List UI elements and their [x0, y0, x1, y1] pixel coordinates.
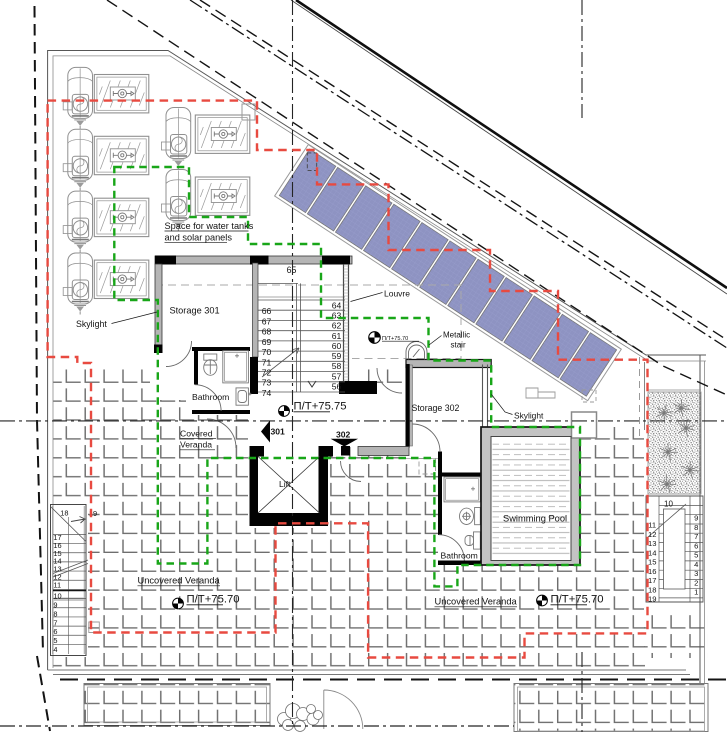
- svg-text:11: 11: [648, 521, 656, 530]
- svg-text:6: 6: [694, 541, 698, 550]
- svg-text:7: 7: [53, 618, 57, 627]
- svg-text:6: 6: [53, 627, 57, 636]
- svg-text:302: 302: [336, 430, 351, 440]
- svg-text:66: 66: [262, 306, 272, 316]
- svg-text:5: 5: [53, 636, 57, 645]
- svg-text:Covered: Covered: [180, 429, 213, 439]
- svg-text:71: 71: [262, 357, 272, 367]
- svg-text:18: 18: [648, 585, 656, 594]
- svg-text:and solar panels: and solar panels: [165, 233, 233, 243]
- svg-text:14: 14: [648, 548, 656, 557]
- svg-text:Storage 302: Storage 302: [412, 403, 460, 413]
- svg-text:301: 301: [271, 427, 286, 437]
- svg-text:64: 64: [332, 300, 342, 310]
- svg-text:10: 10: [664, 500, 673, 509]
- svg-text:61: 61: [332, 331, 342, 341]
- svg-text:8: 8: [53, 609, 57, 618]
- svg-text:59: 59: [332, 351, 342, 361]
- svg-text:8: 8: [694, 523, 698, 532]
- svg-text:Skylight: Skylight: [514, 411, 544, 421]
- svg-text:Lift: Lift: [279, 479, 291, 489]
- svg-text:5: 5: [694, 551, 698, 560]
- svg-text:Π/Τ+75.75: Π/Τ+75.75: [294, 401, 347, 413]
- svg-text:67: 67: [262, 316, 272, 326]
- svg-text:57: 57: [332, 371, 342, 381]
- svg-text:3: 3: [694, 569, 698, 578]
- svg-text:56: 56: [332, 382, 342, 392]
- svg-text:58: 58: [332, 361, 342, 371]
- svg-text:Space for water tanks: Space for water tanks: [165, 221, 254, 231]
- svg-text:Metallic: Metallic: [443, 331, 470, 340]
- svg-text:17: 17: [648, 576, 656, 585]
- svg-text:7: 7: [694, 532, 698, 541]
- svg-text:65: 65: [287, 265, 297, 275]
- svg-text:4: 4: [53, 645, 57, 654]
- svg-text:Bathroom: Bathroom: [441, 551, 478, 561]
- svg-text:74: 74: [262, 388, 272, 398]
- svg-text:Π/Τ+75.70: Π/Τ+75.70: [551, 594, 604, 606]
- svg-text:70: 70: [262, 347, 272, 357]
- svg-text:4: 4: [694, 560, 698, 569]
- svg-text:60: 60: [332, 341, 342, 351]
- svg-text:16: 16: [648, 567, 656, 576]
- svg-text:2: 2: [694, 578, 698, 587]
- svg-text:13: 13: [648, 539, 656, 548]
- svg-text:9: 9: [694, 514, 698, 523]
- svg-text:11: 11: [53, 580, 61, 589]
- svg-text:72: 72: [262, 368, 272, 378]
- svg-text:Π/Τ+75.70: Π/Τ+75.70: [187, 594, 240, 606]
- svg-text:Uncovered Veranda: Uncovered Veranda: [138, 576, 221, 586]
- svg-text:Louvre: Louvre: [384, 289, 410, 299]
- svg-text:68: 68: [262, 327, 272, 337]
- svg-text:stair: stair: [451, 341, 466, 350]
- svg-text:1: 1: [694, 588, 698, 597]
- svg-text:9: 9: [53, 601, 57, 610]
- svg-text:Storage 301: Storage 301: [170, 306, 220, 316]
- svg-text:69: 69: [262, 337, 272, 347]
- svg-text:Bathroom: Bathroom: [192, 392, 229, 402]
- svg-text:12: 12: [648, 530, 656, 539]
- svg-text:Skylight: Skylight: [76, 319, 107, 329]
- svg-text:15: 15: [648, 558, 656, 567]
- svg-text:62: 62: [332, 321, 342, 331]
- svg-text:Uncovered Veranda: Uncovered Veranda: [435, 597, 518, 607]
- svg-text:Veranda: Veranda: [180, 440, 212, 450]
- svg-text:Swimming Pool: Swimming Pool: [503, 514, 567, 524]
- svg-text:10: 10: [53, 592, 61, 601]
- svg-text:18: 18: [60, 508, 68, 517]
- svg-text:19: 19: [648, 595, 656, 604]
- svg-text:73: 73: [262, 378, 272, 388]
